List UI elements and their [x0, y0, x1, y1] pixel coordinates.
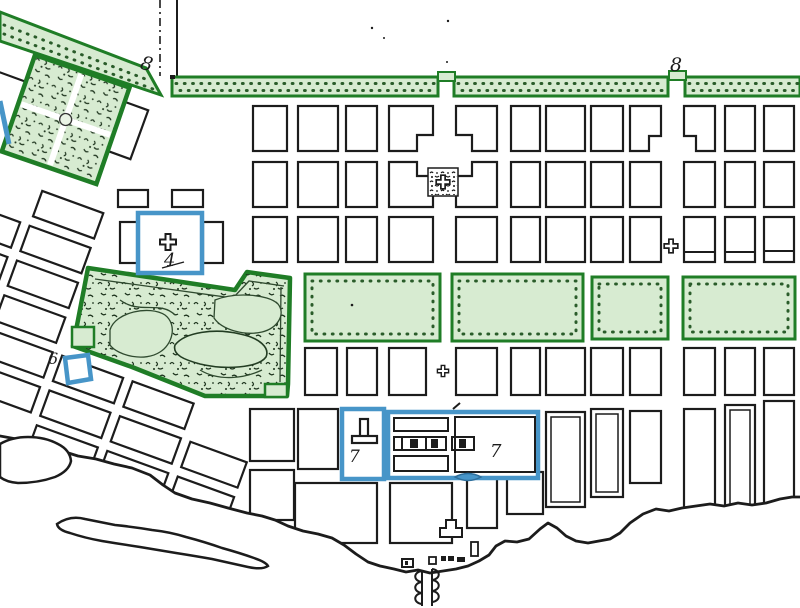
- city-block: [591, 348, 623, 395]
- stall-fill: [459, 439, 466, 448]
- stall-fill: [431, 439, 438, 448]
- city-block: [346, 106, 377, 151]
- grid-row-2: [118, 162, 794, 207]
- ink-speck: [371, 27, 373, 29]
- city-block: [346, 162, 377, 207]
- city-block: [684, 409, 715, 509]
- city-block: [546, 412, 585, 507]
- shore-building: [471, 542, 478, 556]
- top-esplanade: [170, 71, 800, 96]
- label-boulevard: 8: [138, 52, 155, 76]
- site-six-outline: [65, 355, 91, 383]
- city-block: [546, 106, 585, 151]
- pier: [415, 569, 439, 606]
- city-block: [203, 222, 223, 263]
- city-block: [725, 217, 755, 262]
- city-block: [118, 190, 148, 207]
- esplanade-crossing: [438, 72, 455, 81]
- ink-speck: [351, 304, 354, 307]
- city-block: [546, 217, 585, 262]
- city-block: [298, 409, 338, 469]
- city-block: [305, 348, 337, 395]
- city-block: [346, 217, 377, 262]
- shore-building: [429, 557, 436, 564]
- city-block: [172, 190, 203, 207]
- label-site-six: 6: [48, 349, 58, 368]
- label-site-seven-left: 7: [349, 447, 360, 467]
- city-block: [591, 162, 623, 207]
- city-block: [253, 217, 287, 262]
- city-block: [725, 162, 755, 207]
- ink-tick: [453, 403, 460, 409]
- city-block: [511, 106, 540, 151]
- grid-row-1: [253, 106, 794, 151]
- city-block-l-shape: [456, 106, 497, 151]
- city-plan-map: 8 8 4 6 7 7: [0, 0, 800, 608]
- city-block-l-shape: [456, 162, 497, 207]
- stall-fill: [410, 439, 418, 448]
- city-block: [546, 348, 585, 395]
- shore-building: [441, 556, 446, 561]
- building-tee-bar: [352, 436, 377, 443]
- city-block: [511, 162, 540, 207]
- city-block: [298, 162, 338, 207]
- city-block: [250, 470, 294, 520]
- city-block: [764, 162, 794, 207]
- city-block: [250, 409, 294, 461]
- site-six: [65, 355, 91, 383]
- park-clearing: [214, 295, 281, 333]
- city-block: [630, 348, 661, 395]
- city-block: [764, 401, 794, 505]
- shore-building-fill: [405, 561, 408, 565]
- park-corner-plot: [265, 384, 287, 397]
- city-block: [684, 162, 715, 207]
- city-block: [253, 162, 287, 207]
- city-block: [0, 198, 20, 247]
- grid-row-5: [305, 348, 794, 395]
- city-block: [467, 478, 497, 528]
- park-corner-plot: [72, 327, 94, 347]
- ink-speck: [446, 61, 448, 63]
- island-long: [57, 518, 268, 569]
- grid-row-3: [120, 217, 794, 263]
- city-block-l-shape: [630, 106, 661, 151]
- site-seven-compound: [342, 403, 538, 481]
- esplanade-segment: [454, 77, 668, 96]
- city-block: [456, 217, 497, 262]
- city-block: [725, 106, 755, 151]
- city-block: [684, 348, 715, 395]
- pier-scallops-left: [415, 571, 422, 604]
- ink-speck: [447, 20, 449, 22]
- city-block: [684, 217, 715, 262]
- city-block: [298, 106, 338, 151]
- esplanade-end-tick: [170, 75, 175, 79]
- esplanade-segment: [685, 77, 800, 96]
- city-block: [725, 348, 755, 395]
- city-block-l-shape: [684, 106, 715, 151]
- city-block: [298, 217, 338, 262]
- city-block: [389, 348, 426, 395]
- city-block: [511, 348, 540, 395]
- city-block: [630, 217, 661, 262]
- church-cross-icon: [664, 239, 678, 253]
- city-block: [591, 217, 623, 262]
- esplanade-segment: [172, 77, 438, 96]
- label-esplanade: 8: [670, 54, 682, 76]
- city-block: [764, 348, 794, 395]
- shore-building: [448, 556, 454, 561]
- shore-building: [457, 557, 465, 562]
- label-site-seven-right: 7: [490, 441, 502, 462]
- green-square: [592, 277, 668, 339]
- city-block: [389, 217, 433, 262]
- green-squares-row: [305, 274, 795, 341]
- city-block: [630, 411, 661, 483]
- city-block: [120, 222, 138, 263]
- city-block: [295, 483, 377, 543]
- city-block-l-shape: [389, 162, 433, 207]
- city-block: [253, 106, 287, 151]
- city-block: [630, 162, 661, 207]
- map-canvas: 8 8 4 6 7 7: [0, 0, 800, 608]
- green-square: [305, 274, 440, 341]
- city-block: [347, 348, 377, 395]
- city-block: [546, 162, 585, 207]
- church-cross-icon: [437, 365, 448, 376]
- city-block: [456, 348, 497, 395]
- green-square: [683, 277, 795, 339]
- city-block-l-shape: [389, 106, 433, 151]
- fountain-basin: [455, 474, 481, 481]
- ink-speck: [383, 37, 385, 39]
- city-block: [764, 217, 794, 262]
- city-block: [764, 106, 794, 151]
- park-clearing: [110, 310, 172, 357]
- island-west: [0, 437, 71, 483]
- building-tee-stem: [360, 419, 368, 437]
- city-block: [511, 217, 540, 262]
- green-square: [452, 274, 583, 341]
- city-block: [591, 106, 623, 151]
